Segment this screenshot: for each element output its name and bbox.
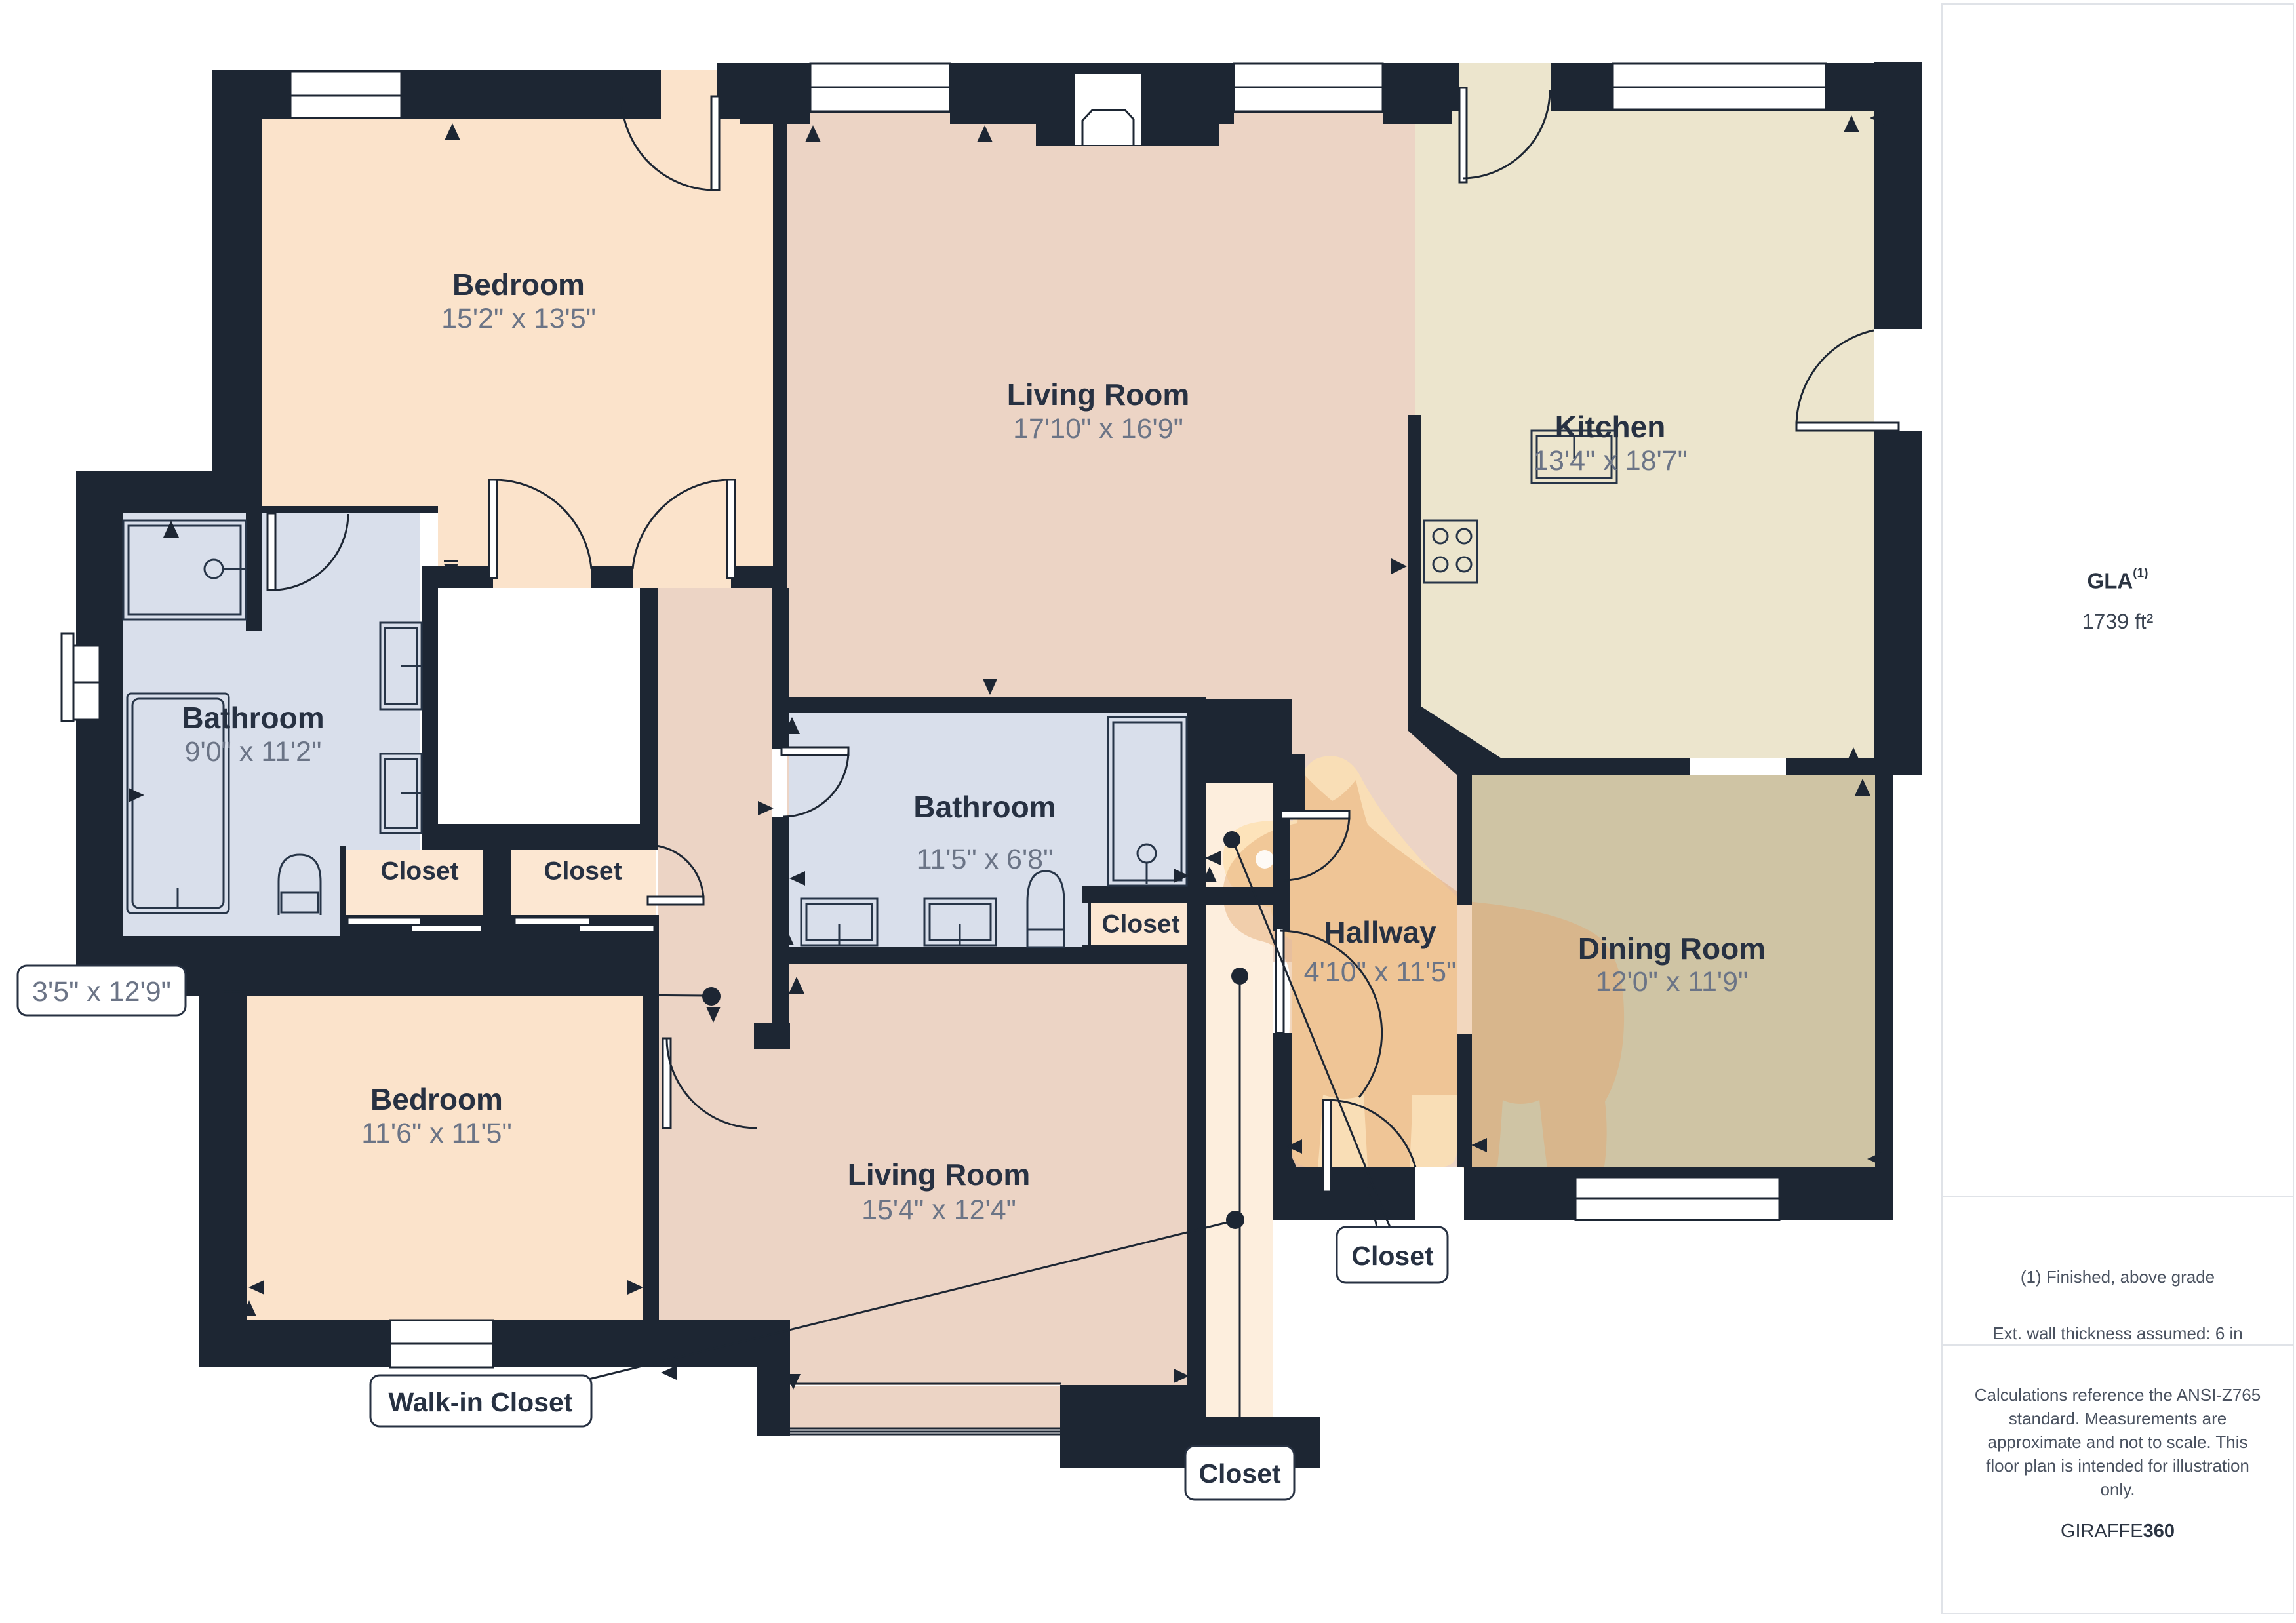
- svg-text:Kitchen: Kitchen: [1555, 410, 1666, 444]
- svg-text:9'0" x 11'2": 9'0" x 11'2": [185, 736, 322, 768]
- svg-text:17'10" x 16'9": 17'10" x 16'9": [1013, 413, 1183, 444]
- svg-text:standard. Measurements are: standard. Measurements are: [2009, 1409, 2227, 1428]
- svg-text:13'4" x 18'7": 13'4" x 18'7": [1533, 445, 1688, 477]
- svg-text:Bathroom: Bathroom: [913, 790, 1056, 824]
- svg-text:Living Room: Living Room: [848, 1158, 1031, 1192]
- svg-text:3'5" x 12'9": 3'5" x 12'9": [32, 976, 171, 1007]
- svg-text:Closet: Closet: [1351, 1241, 1434, 1271]
- svg-text:Calculations reference the ANS: Calculations reference the ANSI-Z765: [1975, 1385, 2261, 1405]
- svg-text:1739 ft²: 1739 ft²: [2082, 610, 2154, 633]
- svg-text:Closet: Closet: [380, 857, 458, 886]
- svg-text:11'5" x 6'8": 11'5" x 6'8": [917, 844, 1054, 875]
- svg-text:Walk-in Closet: Walk-in Closet: [389, 1387, 573, 1417]
- svg-text:12'0" x 11'9": 12'0" x 11'9": [1596, 966, 1749, 998]
- svg-text:floor plan is intended for ill: floor plan is intended for illustration: [1986, 1456, 2249, 1476]
- svg-text:Closet: Closet: [1198, 1458, 1281, 1489]
- svg-text:Bathroom: Bathroom: [182, 701, 324, 735]
- svg-text:11'6" x 11'5": 11'6" x 11'5": [361, 1118, 511, 1149]
- svg-text:GIRAFFE360: GIRAFFE360: [2061, 1521, 2175, 1542]
- svg-text:Hallway: Hallway: [1324, 915, 1436, 949]
- svg-text:Closet: Closet: [544, 857, 622, 886]
- svg-text:15'2" x 13'5": 15'2" x 13'5": [441, 303, 596, 334]
- svg-text:Ext. wall thickness assumed: 6: Ext. wall thickness assumed: 6 in: [1992, 1323, 2243, 1343]
- svg-text:Bedroom: Bedroom: [370, 1082, 503, 1116]
- svg-text:Closet: Closet: [1101, 910, 1179, 939]
- svg-text:Dining Room: Dining Room: [1578, 931, 1766, 966]
- svg-text:15'4" x 12'4": 15'4" x 12'4": [861, 1194, 1016, 1226]
- svg-text:only.: only.: [2101, 1479, 2135, 1499]
- svg-text:approximate and not to scale.: approximate and not to scale. This: [1988, 1432, 2248, 1452]
- svg-text:(1) Finished, above grade: (1) Finished, above grade: [2021, 1267, 2215, 1287]
- svg-text:Bedroom: Bedroom: [452, 267, 585, 302]
- svg-text:Living Room: Living Room: [1007, 378, 1190, 412]
- svg-text:4'10" x 11'5": 4'10" x 11'5": [1304, 956, 1457, 988]
